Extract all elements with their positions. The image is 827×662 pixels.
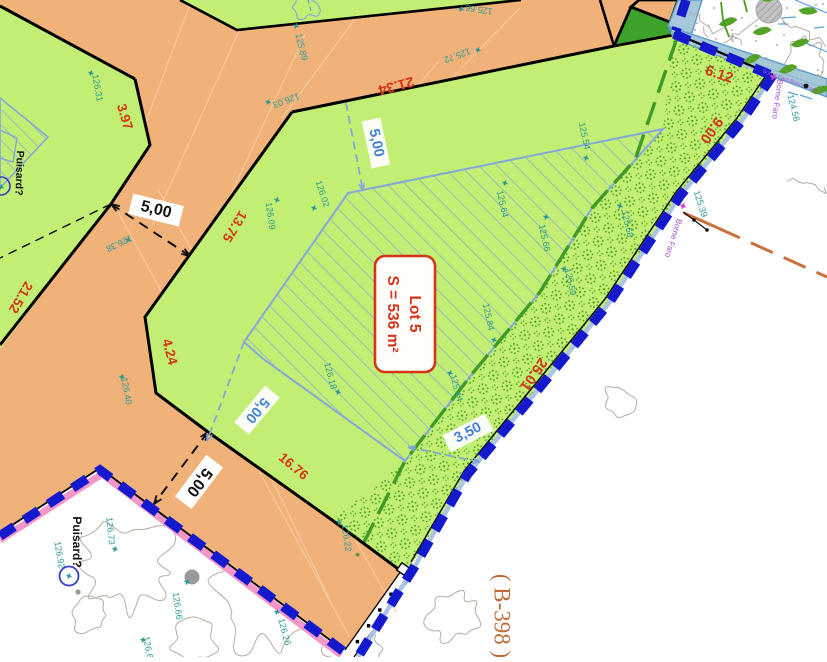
- svg-text:S = 536 m²: S = 536 m²: [384, 275, 401, 352]
- svg-text:Puisard?: Puisard?: [70, 516, 84, 567]
- svg-text:( B-398 ): ( B-398 ): [490, 574, 515, 657]
- svg-text:Puisard?: Puisard?: [12, 150, 26, 195]
- svg-text:Lot 5: Lot 5: [406, 295, 423, 332]
